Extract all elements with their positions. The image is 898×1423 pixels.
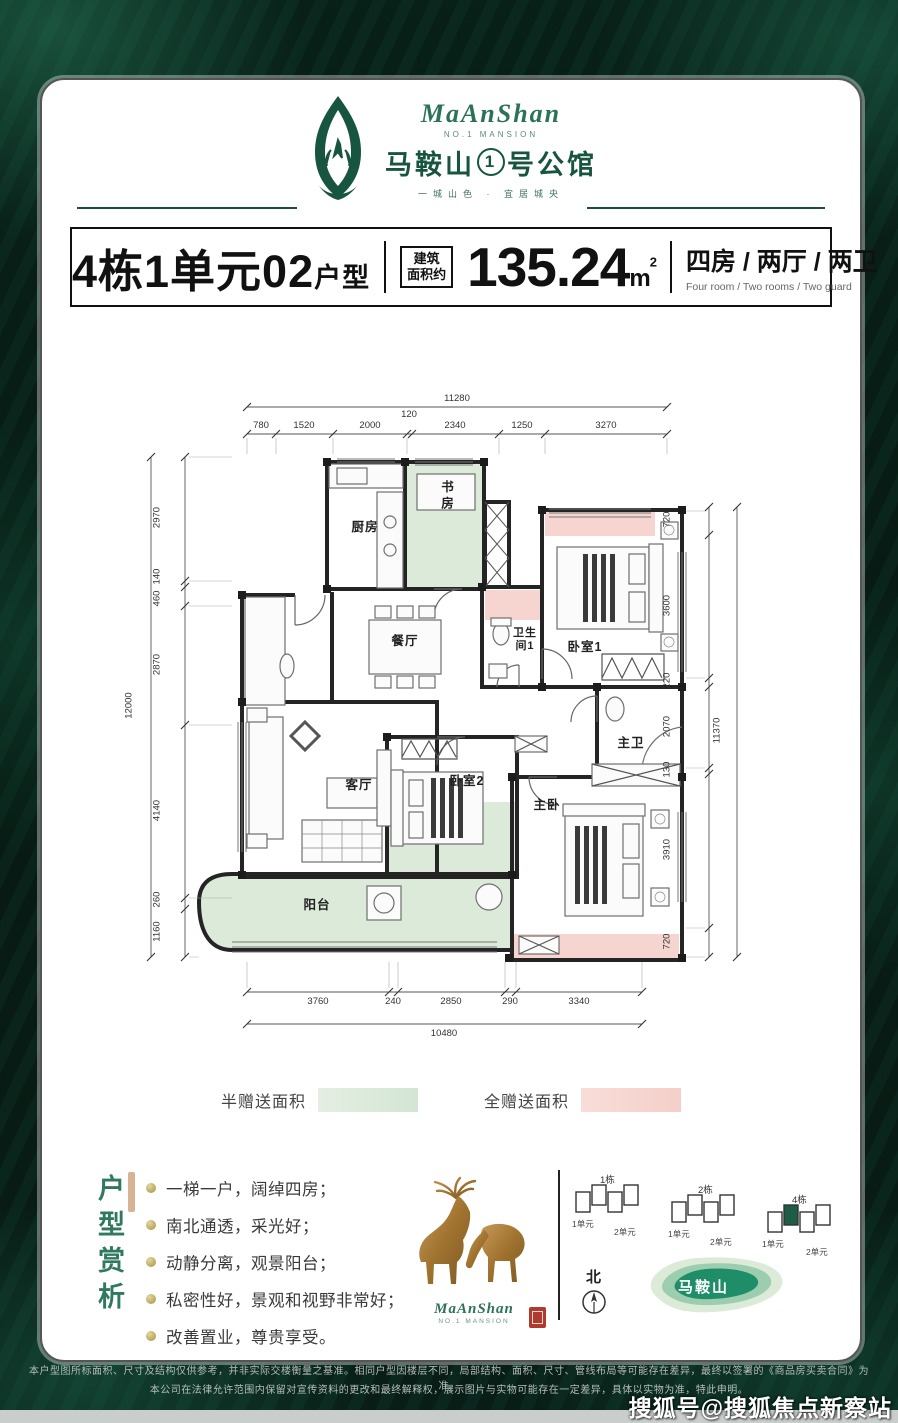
bullet-dot-icon — [146, 1294, 156, 1304]
poster-card: MaAnShan NO.1 MANSION 马鞍山 1 号公馆 一城山色 · 宜… — [40, 78, 862, 1362]
dim-label: 1250 — [500, 420, 544, 431]
bullet-dot-icon — [146, 1220, 156, 1230]
unit-title-suffix: 户型 — [314, 263, 370, 293]
watermark: 搜狐号@搜狐焦点新察站 — [629, 1389, 892, 1423]
building-cluster-4 — [766, 1202, 836, 1236]
dim-label: 120 — [387, 409, 431, 420]
dim-label: 460 — [152, 577, 163, 621]
dim-label: 2070 — [662, 705, 673, 749]
dim-label: 2850 — [429, 996, 473, 1007]
ribbon-decoration — [128, 1172, 135, 1212]
bullet-dot-icon — [146, 1183, 156, 1193]
dim-label: 1160 — [152, 910, 163, 954]
deer-illustration — [399, 1176, 549, 1294]
bullet-text: 改善置业，尊贵享受。 — [166, 1324, 336, 1348]
siteplan: 1栋 1单元 2单元 2栋 1单元 2单元 4栋 1单元 2单元 北 — [570, 1166, 852, 1344]
brand-subtitle: NO.1 MANSION — [385, 130, 597, 139]
building-cluster-1 — [574, 1182, 644, 1216]
rooms-summary: 四房 / 两厅 / 两卫 Four room / Two rooms / Two… — [686, 242, 878, 293]
brand-cn-left: 马鞍山 — [385, 143, 475, 182]
legend: 半赠送面积 全赠送面积 — [42, 1088, 860, 1112]
dim-label: 12000 — [124, 684, 135, 728]
legend-half-label: 半赠送面积 — [221, 1088, 306, 1112]
bullet-text: 一梯一户，阔绰四房； — [166, 1176, 336, 1200]
brand-cn-right: 号公馆 — [507, 143, 597, 182]
room-label-master: 主卧 — [515, 794, 579, 813]
rooms-en: Four room / Two rooms / Two guard — [686, 281, 878, 293]
area-value: 135.24m2 — [467, 235, 656, 299]
mountain-label: 马鞍山 — [678, 1276, 729, 1297]
room-label-bath1: 卫生间1 — [509, 627, 541, 652]
dim-label: 130 — [662, 748, 673, 792]
legend-full-gift: 全赠送面积 — [484, 1088, 681, 1112]
bullet-dot-icon — [146, 1331, 156, 1341]
room-label-study: 书房 — [437, 480, 456, 513]
header-divider-right — [587, 207, 825, 209]
deer-emblem: MaAnShan NO.1 MANSION — [394, 1176, 554, 1346]
brand-tagline: 一城山色 · 宜居城央 — [385, 187, 597, 200]
brand-chinese-name: 马鞍山 1 号公馆 — [385, 143, 597, 182]
room-label-kitchen: 厨房 — [333, 516, 397, 535]
red-seal-icon — [529, 1307, 546, 1328]
dim-label: 720 — [662, 920, 673, 964]
titlebar-divider2 — [670, 241, 672, 293]
dim-label: 11280 — [435, 393, 479, 404]
dim-label: 2870 — [152, 643, 163, 687]
unit-title-bar: 4栋1单元02户型 建筑 面积约 135.24m2 四房 / 两厅 / 两卫 F… — [70, 227, 832, 307]
unit-title-main: 4栋1单元02 — [72, 246, 314, 297]
brand-script: MaAnShan — [385, 99, 597, 129]
dim-label: 220 — [662, 659, 673, 703]
dim-label: 720 — [662, 498, 673, 542]
titlebar-divider — [384, 241, 386, 293]
dim-label: 10480 — [422, 1028, 466, 1039]
room-label-bed1: 卧室1 — [553, 636, 617, 655]
room-label-balcony: 阳台 — [285, 894, 349, 913]
area-unit: m — [629, 265, 649, 292]
dim-label: 2000 — [348, 420, 392, 431]
bullet-text: 私密性好，景观和视野非常好； — [166, 1287, 404, 1311]
area-number: 135.24 — [467, 236, 629, 298]
bullet-text: 南北通透，采光好； — [166, 1213, 319, 1237]
legend-half-swatch — [318, 1088, 418, 1112]
unit-label: 2单元 — [710, 1236, 732, 1248]
dim-label: 2970 — [152, 496, 163, 540]
header-divider-left — [77, 207, 297, 209]
area-label-line1: 建筑 — [407, 251, 446, 267]
dim-label: 3270 — [584, 420, 628, 431]
unit-label: 1单元 — [668, 1228, 690, 1240]
dim-label: 240 — [371, 996, 415, 1007]
area-unit-sup: 2 — [650, 255, 656, 270]
dim-label: 4140 — [152, 789, 163, 833]
phoenix-flame-logo-icon — [305, 94, 371, 204]
rooms-cn: 四房 / 两厅 / 两卫 — [686, 242, 878, 278]
dim-label: 2340 — [433, 420, 477, 431]
dim-label: 11370 — [712, 709, 723, 753]
bullet-dot-icon — [146, 1257, 156, 1267]
legend-half-gift: 半赠送面积 — [221, 1088, 418, 1112]
room-label-living: 客厅 — [327, 774, 391, 793]
legend-full-label: 全赠送面积 — [484, 1088, 569, 1112]
brand-cn-number: 1 — [477, 148, 505, 176]
room-label-dining: 餐厅 — [373, 630, 437, 649]
brand-header: MaAnShan NO.1 MANSION 马鞍山 1 号公馆 一城山色 · 宜… — [42, 94, 860, 204]
building-cluster-2 — [670, 1192, 740, 1226]
dim-label: 3600 — [662, 584, 673, 628]
bullet-text: 动静分离，观景阳台； — [166, 1250, 336, 1274]
section-divider — [558, 1170, 560, 1320]
unit-title: 4栋1单元02户型 — [72, 235, 370, 300]
compass-north-label: 北 — [586, 1266, 601, 1287]
brand-text-block: MaAnShan NO.1 MANSION 马鞍山 1 号公馆 一城山色 · 宜… — [385, 99, 597, 200]
area-label-box: 建筑 面积约 — [400, 246, 453, 287]
compass-icon — [580, 1288, 608, 1316]
analysis-title: 户型赏析 — [90, 1174, 129, 1354]
dim-label: 3760 — [296, 996, 340, 1007]
unit-label: 2单元 — [614, 1226, 636, 1238]
dim-label: 780 — [239, 420, 283, 431]
area-label-line2: 面积约 — [407, 267, 446, 283]
unit-label: 1单元 — [572, 1218, 594, 1230]
room-label-bed2: 卧室2 — [435, 770, 499, 789]
floorplan: 11280 780 1520 2000 120 2340 1250 3270 1… — [137, 382, 757, 1058]
legend-full-swatch — [581, 1088, 681, 1112]
unit-label: 2单元 — [806, 1246, 828, 1258]
room-label-master-bath: 主卫 — [599, 732, 663, 751]
dim-label: 3340 — [557, 996, 601, 1007]
dim-label: 1520 — [282, 420, 326, 431]
unit-label: 1单元 — [762, 1238, 784, 1250]
dim-label: 290 — [488, 996, 532, 1007]
dim-label: 3910 — [662, 828, 673, 872]
